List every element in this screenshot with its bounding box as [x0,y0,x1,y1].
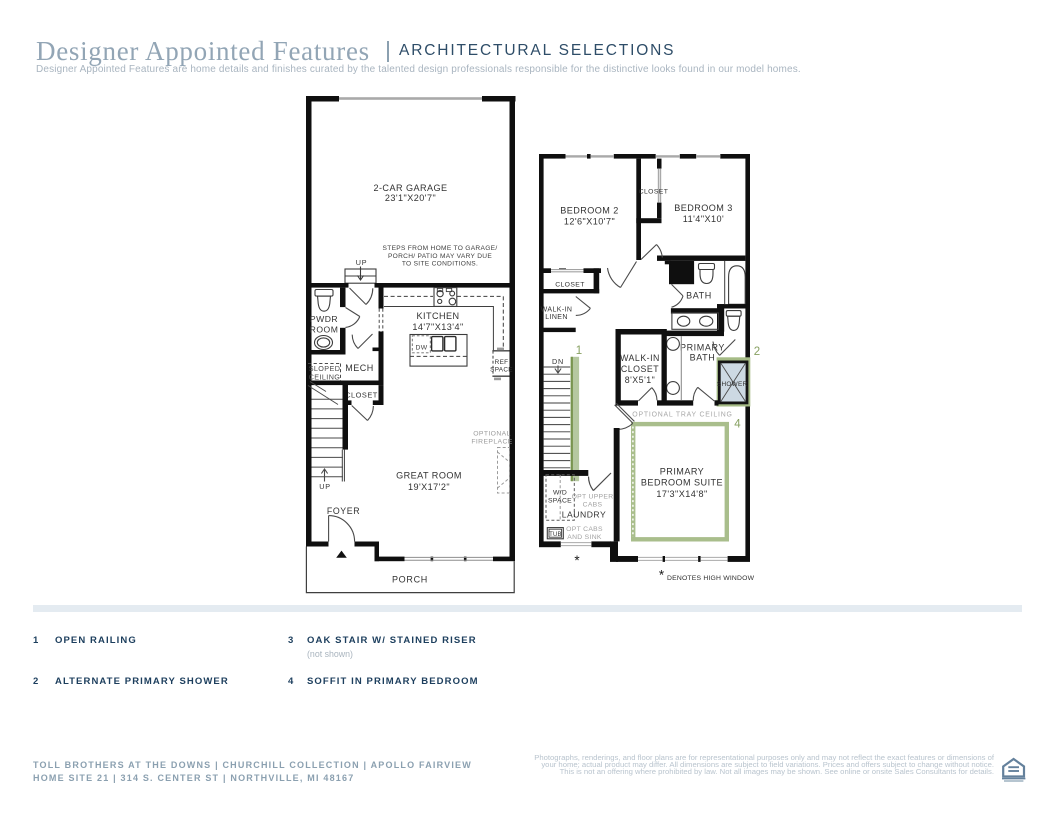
svg-text:*: * [659,568,665,583]
svg-text:TO SITE CONDITIONS.: TO SITE CONDITIONS. [402,260,478,267]
svg-text:CEILING: CEILING [309,373,341,382]
svg-text:LINEN: LINEN [545,314,568,321]
svg-text:BATH: BATH [686,290,712,300]
svg-text:UP: UP [319,482,331,491]
svg-text:1: 1 [576,345,582,357]
svg-text:OPT UPPER: OPT UPPER [572,493,614,500]
svg-text:AND SINK: AND SINK [567,534,602,541]
svg-text:CLOSET: CLOSET [555,281,585,288]
svg-text:CLOSET: CLOSET [345,390,378,399]
svg-text:PWDR: PWDR [310,314,338,324]
svg-text:4: 4 [734,418,741,430]
svg-text:MECH: MECH [345,363,374,373]
svg-text:12'6"X10'7": 12'6"X10'7" [564,216,615,226]
svg-text:DW: DW [416,345,428,352]
svg-text:BEDROOM 2: BEDROOM 2 [560,205,619,215]
svg-text:LAUNDRY: LAUNDRY [562,510,606,520]
svg-text:23'1"X20'7": 23'1"X20'7" [385,193,436,203]
svg-text:W/D: W/D [553,489,567,496]
svg-text:WALK-IN: WALK-IN [620,353,660,363]
svg-text:STEPS FROM HOME TO GARAGE/: STEPS FROM HOME TO GARAGE/ [383,245,498,252]
svg-text:DENOTES HIGH WINDOW: DENOTES HIGH WINDOW [667,575,755,582]
svg-text:BEDROOM 3: BEDROOM 3 [674,203,733,213]
svg-text:PORCH: PORCH [392,575,428,585]
svg-text:FOYER: FOYER [327,506,360,516]
svg-text:OPT CABS: OPT CABS [566,526,603,533]
svg-text:BATH: BATH [690,353,716,363]
svg-text:CABS: CABS [583,501,603,508]
svg-text:SHOWER: SHOWER [717,381,748,388]
svg-text:OPTIONAL: OPTIONAL [473,430,511,437]
svg-text:TUB: TUB [549,532,562,538]
svg-text:FIREPLACE: FIREPLACE [471,438,512,445]
svg-text:17'3"X14'8": 17'3"X14'8" [656,489,707,499]
svg-text:2: 2 [754,346,760,358]
svg-text:UP: UP [356,258,368,267]
svg-text:PORCH/ PATIO MAY VARY DUE: PORCH/ PATIO MAY VARY DUE [388,253,492,260]
svg-text:CLOSET: CLOSET [639,189,669,196]
svg-text:11'4"X10': 11'4"X10' [683,214,724,224]
svg-text:WALK-IN: WALK-IN [541,307,573,314]
svg-text:2-CAR GARAGE: 2-CAR GARAGE [373,183,447,193]
svg-text:14'7"X13'4": 14'7"X13'4" [412,322,463,332]
svg-text:BEDROOM SUITE: BEDROOM SUITE [641,478,723,488]
svg-text:SPACE: SPACE [490,367,513,374]
svg-text:SPACE: SPACE [548,497,572,504]
svg-text:8'X5'1": 8'X5'1" [625,375,656,385]
svg-text:OPTIONAL TRAY CEILING: OPTIONAL TRAY CEILING [632,412,732,419]
svg-text:*: * [574,553,580,568]
svg-text:DN: DN [552,357,564,366]
svg-text:PRIMARY: PRIMARY [680,343,725,353]
svg-text:PRIMARY: PRIMARY [660,466,704,476]
svg-text:ROOM: ROOM [310,324,339,334]
svg-text:KITCHEN: KITCHEN [416,311,459,321]
svg-text:REF: REF [495,359,509,366]
svg-text:CLOSET: CLOSET [621,364,659,374]
svg-text:19'X17'2": 19'X17'2" [408,482,450,492]
svg-text:GREAT ROOM: GREAT ROOM [396,471,462,481]
